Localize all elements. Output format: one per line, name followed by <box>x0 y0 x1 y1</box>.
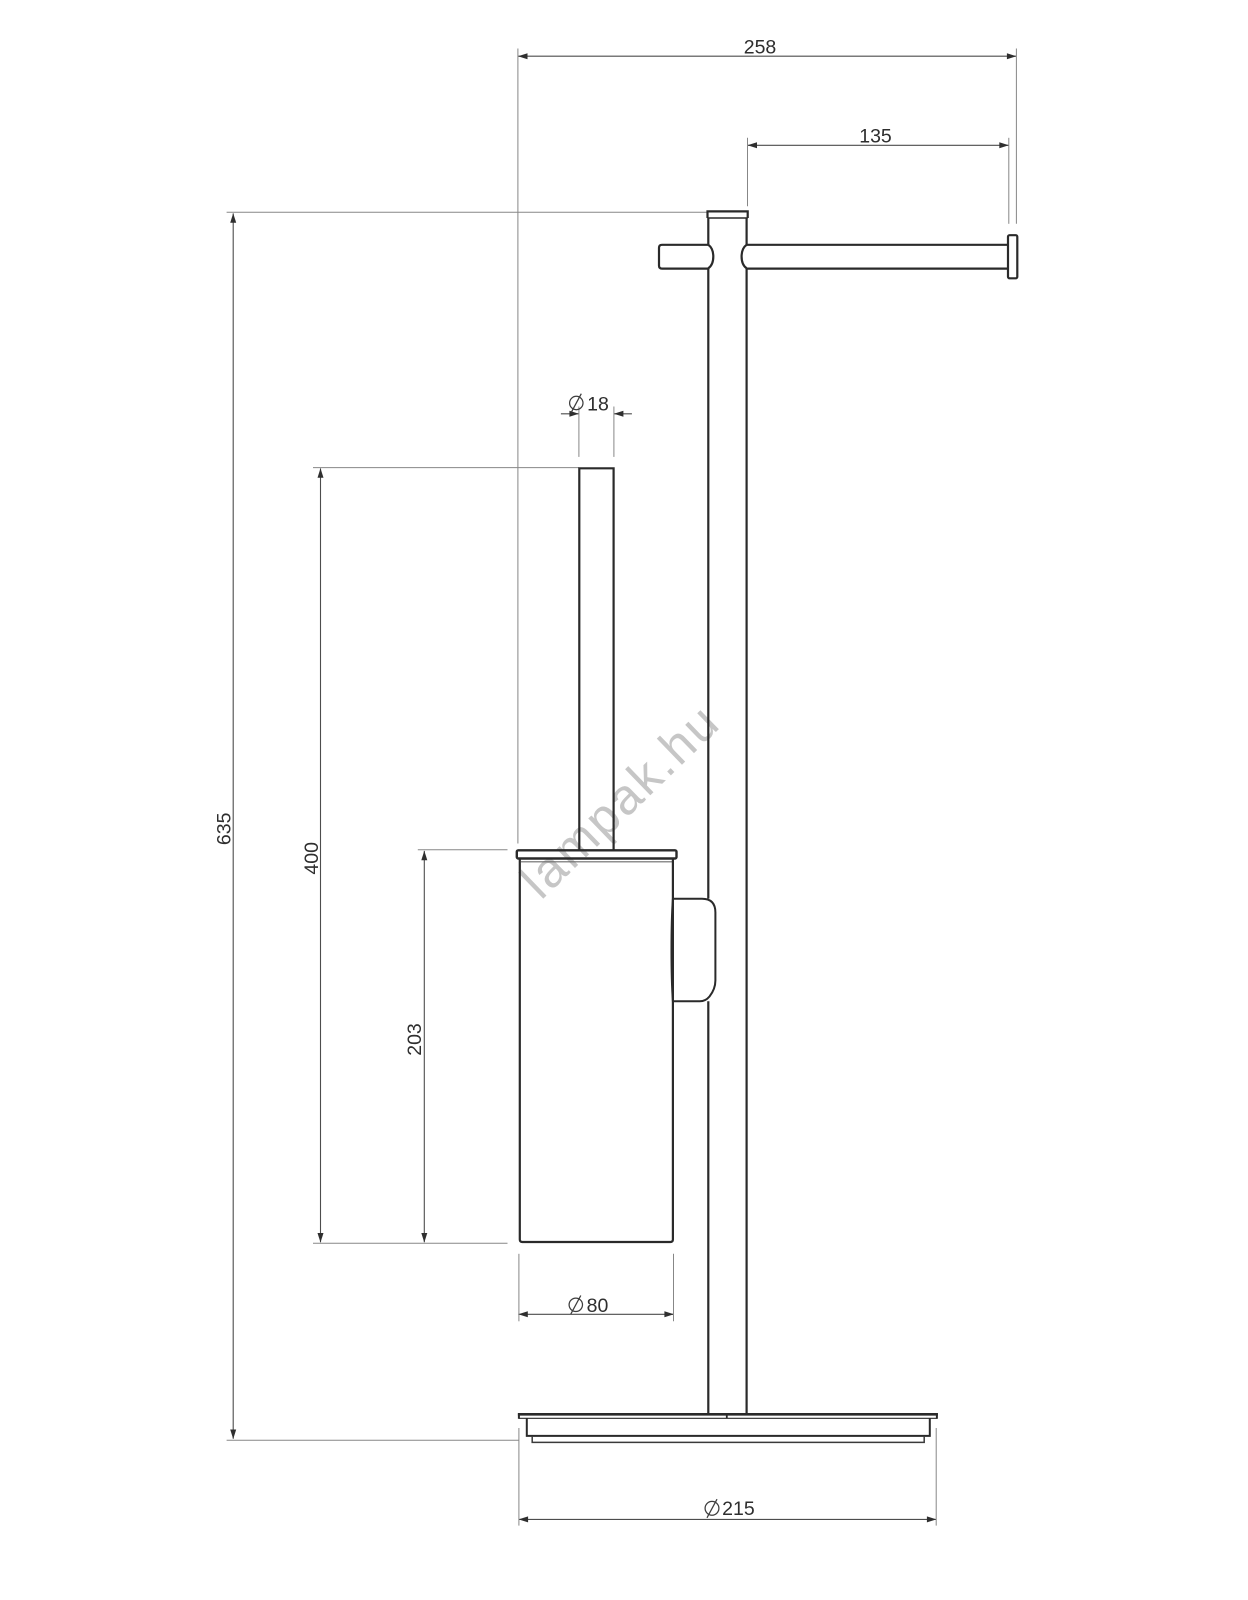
svg-text:258: 258 <box>744 36 777 58</box>
svg-text:400: 400 <box>301 842 323 875</box>
svg-text:18: 18 <box>587 393 609 415</box>
svg-text:635: 635 <box>213 812 235 845</box>
svg-text:203: 203 <box>404 1023 426 1056</box>
svg-text:135: 135 <box>859 125 892 147</box>
svg-text:lampak.hu: lampak.hu <box>510 693 731 909</box>
svg-text:80: 80 <box>587 1295 609 1317</box>
svg-text:215: 215 <box>722 1498 755 1520</box>
